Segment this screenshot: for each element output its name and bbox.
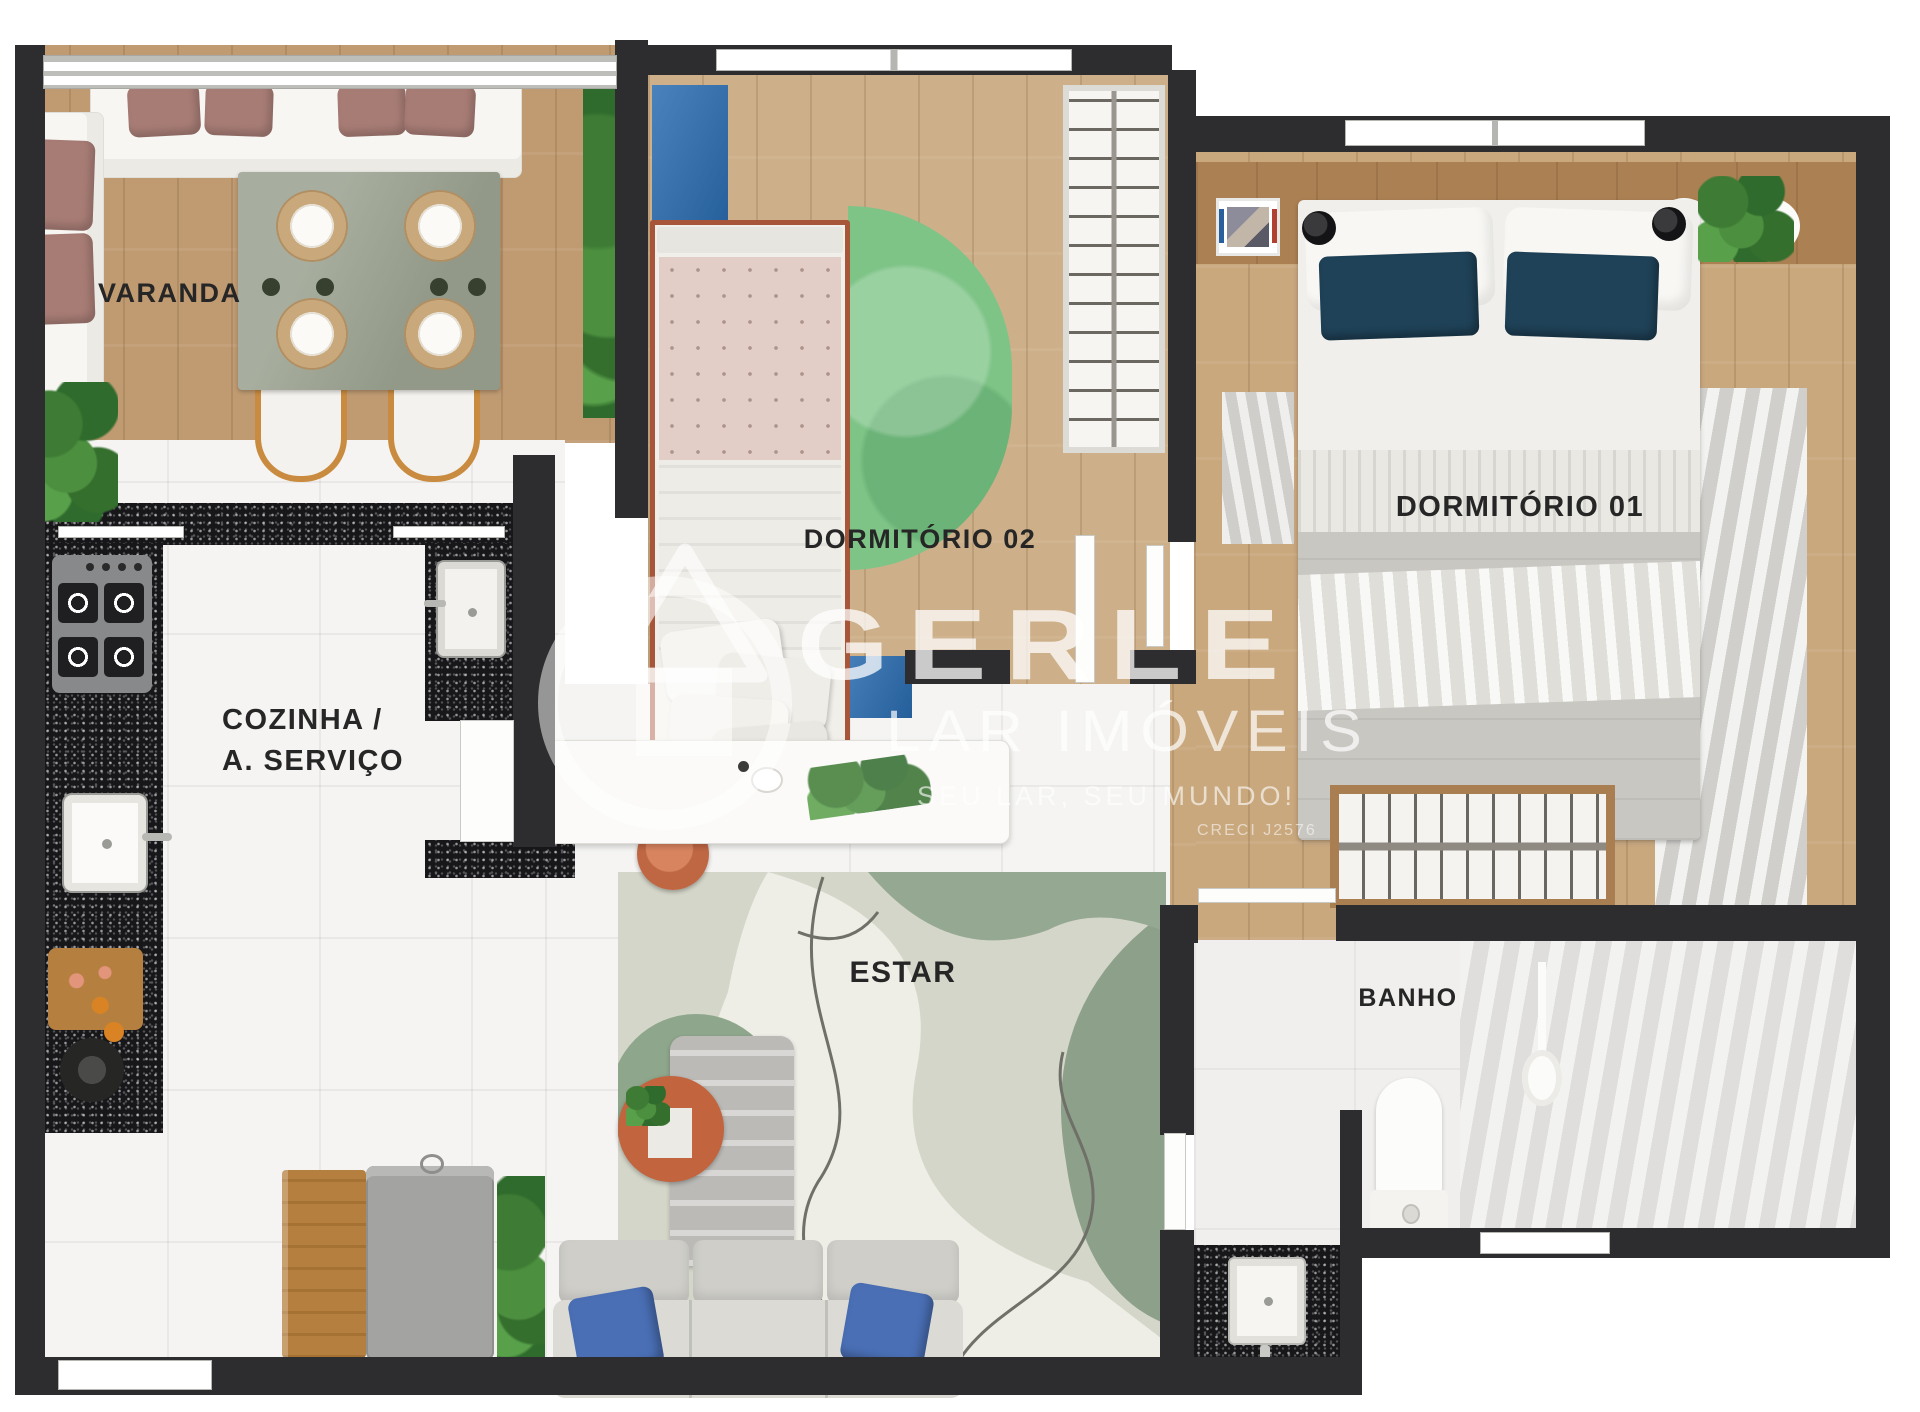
service-cabinet-door	[460, 720, 514, 842]
flush-button	[1402, 1204, 1420, 1224]
room-label-cozinha: COZINHA / A. SERVIÇO	[222, 700, 442, 782]
shower-arm	[1538, 962, 1546, 1058]
bed-headboard	[657, 227, 843, 253]
table-cup	[262, 278, 280, 296]
stove-burner	[104, 637, 144, 677]
shower-head	[1522, 1050, 1562, 1106]
table-cup	[468, 278, 486, 296]
wall-outer-left	[15, 45, 45, 1395]
kitchen-window	[58, 526, 184, 538]
sink-drain	[102, 839, 112, 849]
stove-knob	[118, 563, 126, 571]
kitchen-sink	[62, 793, 148, 893]
dorm2-window	[716, 49, 1072, 71]
sofa-back-cushion	[693, 1240, 823, 1304]
wall-banho-bottom	[1360, 1228, 1890, 1258]
room-label-banho: BANHO	[1338, 984, 1478, 1013]
washing-machine	[366, 1166, 494, 1360]
sofa-pillow	[204, 83, 274, 137]
stove-knob	[102, 563, 110, 571]
sink-drain	[1264, 1297, 1273, 1306]
kitchen-window-sill	[43, 503, 545, 545]
wall-estar-banho	[1160, 941, 1194, 1135]
watermark-subtitle: LAR IMÓVEIS	[886, 698, 1369, 765]
banho-sink	[1228, 1257, 1306, 1345]
room-label-dormitorio02: DORMITÓRIO 02	[780, 524, 1060, 555]
picture-art	[1227, 207, 1269, 247]
place-setting	[404, 298, 476, 370]
stove-burner	[58, 583, 98, 623]
toilet	[1376, 1078, 1442, 1196]
service-window	[58, 1360, 212, 1390]
stove-burner	[58, 637, 98, 677]
side-table-plant	[626, 1086, 670, 1126]
kitchen-window	[393, 526, 505, 538]
bed-blue-pillow	[1319, 251, 1480, 340]
picture-accent-blue	[1219, 209, 1224, 243]
watermark-house-icon	[560, 540, 820, 770]
laundry-tank-sink	[436, 560, 506, 658]
dorm1-gray-mat-left	[1222, 392, 1294, 544]
tank-drain	[468, 608, 477, 617]
laundry-cabinet	[282, 1170, 366, 1358]
place-setting	[276, 190, 348, 262]
sofa-pillow	[337, 83, 407, 137]
wall-varanda-dorm2	[615, 40, 648, 518]
banho-door-leaf	[1198, 888, 1336, 903]
wall-banho-top-b	[1336, 905, 1890, 941]
wall-outer-right	[1856, 116, 1890, 1258]
room-label-cozinha-line1: COZINHA /	[222, 700, 442, 741]
watermark-license: CRECI J2576	[1197, 822, 1317, 840]
room-label-cozinha-line2: A. SERVIÇO	[222, 741, 442, 782]
stove-burner	[104, 583, 144, 623]
place-setting	[276, 298, 348, 370]
watermark-tagline: SEU LAR, SEU MUNDO!	[917, 781, 1296, 812]
place-setting	[404, 190, 476, 262]
picture-accent-red	[1272, 209, 1277, 243]
tank-faucet	[424, 600, 446, 607]
room-label-dormitorio01: DORMITÓRIO 01	[1390, 491, 1650, 524]
wall-dorm2-dorm1	[1168, 70, 1196, 542]
bed-mattress-pink	[659, 257, 841, 460]
watermark-brand: GERLE	[797, 588, 1298, 703]
nook-door-leaf	[1164, 1133, 1186, 1230]
wall-outer-bottom	[15, 1357, 1362, 1395]
dorm1-console-plant	[1698, 176, 1794, 262]
shower-zone	[1460, 940, 1856, 1228]
floor-plan: VARANDA COZINHA / A. SERVIÇO DORMITÓRIO …	[0, 0, 1920, 1412]
stove-cooktop	[52, 555, 152, 693]
room-label-varanda: VARANDA	[98, 278, 238, 309]
washer-hinge	[420, 1154, 444, 1174]
sofa-pillow	[127, 82, 202, 138]
wall-nook-right	[1340, 1110, 1362, 1360]
dorm1-wall-sconce	[1652, 207, 1686, 241]
table-cup	[316, 278, 334, 296]
wall-banho-top-a	[1160, 905, 1198, 943]
bed-blue-pillow	[1505, 251, 1660, 340]
dorm1-window	[1345, 120, 1645, 146]
sofa-pillow	[404, 82, 477, 138]
dorm2-wardrobe-open-closet	[1063, 85, 1165, 453]
room-label-estar: ESTAR	[828, 956, 978, 990]
dark-bowl	[60, 1038, 124, 1102]
varanda-sliding-window	[43, 55, 617, 89]
dorm2-blue-desk	[652, 85, 728, 235]
fruit	[104, 1022, 124, 1042]
banho-window	[1480, 1232, 1610, 1254]
stove-knob	[134, 563, 142, 571]
estar-hedge-plant	[497, 1176, 545, 1364]
dorm1-wall-sconce	[1302, 211, 1336, 245]
bed-white-throw	[1298, 561, 1700, 711]
dorm1-picture-frame	[1216, 198, 1280, 256]
kitchen-faucet	[142, 833, 172, 841]
cutting-board	[48, 948, 143, 1030]
stove-knob	[86, 563, 94, 571]
table-cup	[430, 278, 448, 296]
dorm1-wardrobe-open-closet	[1330, 785, 1615, 908]
